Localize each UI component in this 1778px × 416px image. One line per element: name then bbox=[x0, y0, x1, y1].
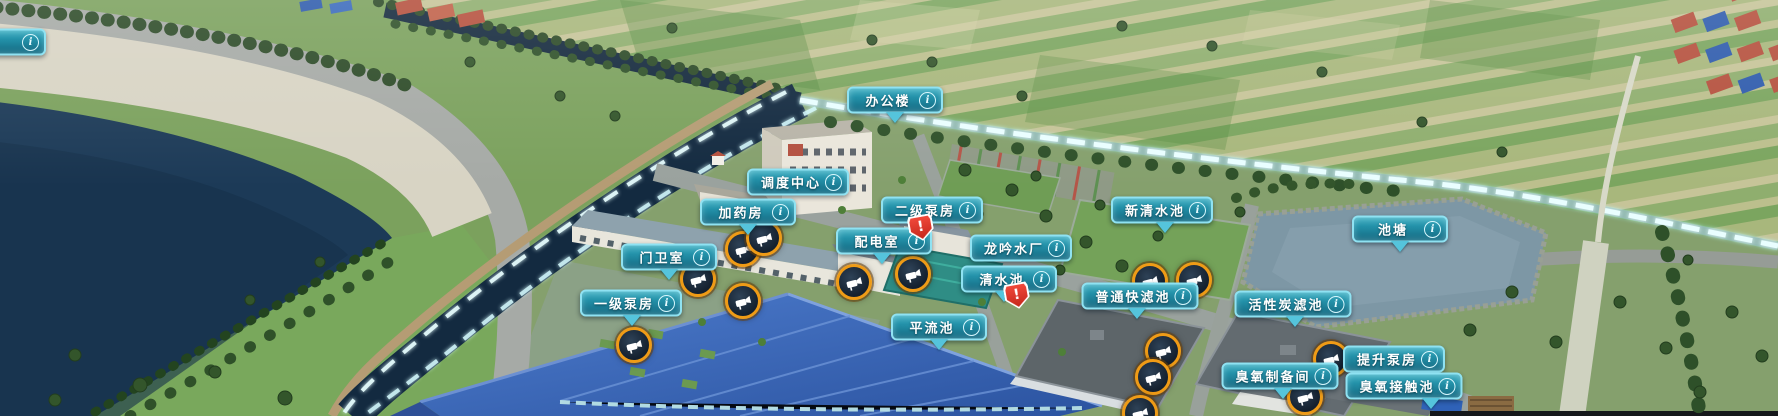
cctv-camera-icon[interactable] bbox=[1135, 359, 1171, 395]
marker-overlay: i 办公楼 i 调度中心 i 加药房 i 二级泵房 i bbox=[0, 0, 1778, 416]
pointer-arrow-icon bbox=[886, 112, 904, 123]
facility-name: 提升泵房 bbox=[1357, 350, 1417, 369]
camera-glyph bbox=[755, 229, 774, 248]
facility-badge[interactable]: 加药房 i bbox=[700, 199, 796, 226]
cctv-camera-icon[interactable] bbox=[1122, 395, 1158, 416]
facility-name: 一级泵房 bbox=[594, 294, 654, 313]
cctv-camera-icon[interactable] bbox=[725, 283, 761, 319]
cctv-camera-icon[interactable] bbox=[616, 327, 652, 363]
pointer-arrow-icon bbox=[1391, 241, 1409, 252]
facility-badge[interactable]: 臭氧制备间 i bbox=[1221, 363, 1338, 390]
info-icon[interactable]: i bbox=[1033, 271, 1050, 288]
camera-glyph bbox=[1144, 368, 1163, 387]
facility-name: 普通快滤池 bbox=[1095, 287, 1170, 306]
facility-badge[interactable]: i bbox=[0, 29, 46, 56]
camera-glyph bbox=[689, 270, 708, 289]
facility-name: 调度中心 bbox=[761, 173, 821, 192]
alarm-exclamation: ! bbox=[1012, 287, 1021, 302]
facility-name: 池塘 bbox=[1378, 220, 1408, 239]
facility-name: 龙吟水厂 bbox=[984, 239, 1044, 258]
alarm-icon[interactable]: ! bbox=[1002, 281, 1031, 311]
alarm-exclamation: ! bbox=[916, 219, 925, 234]
facility-badge[interactable]: 臭氧接触池 i bbox=[1345, 373, 1462, 400]
camera-glyph bbox=[625, 336, 644, 355]
camera-glyph bbox=[1131, 404, 1150, 416]
camera-glyph bbox=[845, 273, 864, 292]
3d-scene-viewport[interactable]: i 办公楼 i 调度中心 i 加药房 i 二级泵房 i bbox=[0, 0, 1778, 416]
info-icon[interactable]: i bbox=[693, 249, 710, 266]
pointer-arrow-icon bbox=[1286, 316, 1304, 327]
facility-name: 臭氧制备间 bbox=[1235, 367, 1310, 386]
pointer-arrow-icon bbox=[930, 339, 948, 350]
info-icon[interactable]: i bbox=[1189, 202, 1206, 219]
info-icon[interactable]: i bbox=[22, 34, 39, 51]
info-icon[interactable]: i bbox=[963, 319, 980, 336]
info-icon[interactable]: i bbox=[658, 295, 675, 312]
facility-badge[interactable]: 办公楼 i bbox=[847, 87, 943, 114]
facility-name: 新清水池 bbox=[1125, 201, 1185, 220]
info-icon[interactable]: i bbox=[1048, 240, 1065, 257]
info-icon[interactable]: i bbox=[1421, 351, 1438, 368]
camera-glyph bbox=[1154, 342, 1173, 361]
camera-glyph bbox=[734, 292, 753, 311]
facility-badge[interactable]: 新清水池 i bbox=[1111, 197, 1213, 224]
camera-glyph bbox=[904, 265, 923, 284]
facility-badge[interactable]: 一级泵房 i bbox=[580, 290, 682, 317]
facility-badge[interactable]: 活性炭滤池 i bbox=[1234, 291, 1351, 318]
info-icon[interactable]: i bbox=[1315, 368, 1332, 385]
facility-name: 门卫室 bbox=[639, 248, 684, 267]
facility-badge[interactable]: 调度中心 i bbox=[747, 169, 849, 196]
pointer-arrow-icon bbox=[739, 224, 757, 235]
info-icon[interactable]: i bbox=[772, 204, 789, 221]
facility-name: 活性炭滤池 bbox=[1248, 295, 1323, 314]
pointer-arrow-icon bbox=[1128, 308, 1146, 319]
pointer-arrow-icon bbox=[1274, 388, 1292, 399]
camera-glyph bbox=[1296, 388, 1315, 407]
pointer-arrow-icon bbox=[873, 253, 891, 264]
pointer-arrow-icon bbox=[1156, 222, 1174, 233]
facility-badge[interactable]: 普通快滤池 i bbox=[1081, 283, 1198, 310]
cctv-camera-icon[interactable] bbox=[836, 264, 872, 300]
facility-name: 平流池 bbox=[909, 318, 954, 337]
info-icon[interactable]: i bbox=[959, 202, 976, 219]
facility-badge[interactable]: 提升泵房 i bbox=[1343, 346, 1445, 373]
pointer-arrow-icon bbox=[1422, 398, 1440, 409]
facility-badge[interactable]: 平流池 i bbox=[891, 314, 987, 341]
info-icon[interactable]: i bbox=[825, 174, 842, 191]
facility-badge[interactable]: 池塘 i bbox=[1352, 216, 1448, 243]
info-icon[interactable]: i bbox=[919, 92, 936, 109]
facility-name: 办公楼 bbox=[865, 91, 910, 110]
facility-badge[interactable]: 门卫室 i bbox=[621, 244, 717, 271]
facility-badge[interactable]: 龙吟水厂 i bbox=[970, 235, 1072, 262]
cctv-camera-icon[interactable] bbox=[895, 256, 931, 292]
info-icon[interactable]: i bbox=[1328, 296, 1345, 313]
info-icon[interactable]: i bbox=[1424, 221, 1441, 238]
facility-name: 臭氧接触池 bbox=[1359, 377, 1434, 396]
pointer-arrow-icon bbox=[660, 269, 678, 280]
facility-name: 加药房 bbox=[718, 203, 763, 222]
facility-name: 配电室 bbox=[854, 232, 899, 251]
pointer-arrow-icon bbox=[623, 315, 641, 326]
alarm-shield: ! bbox=[1005, 283, 1030, 308]
info-icon[interactable]: i bbox=[1439, 378, 1456, 395]
info-icon[interactable]: i bbox=[1175, 288, 1192, 305]
